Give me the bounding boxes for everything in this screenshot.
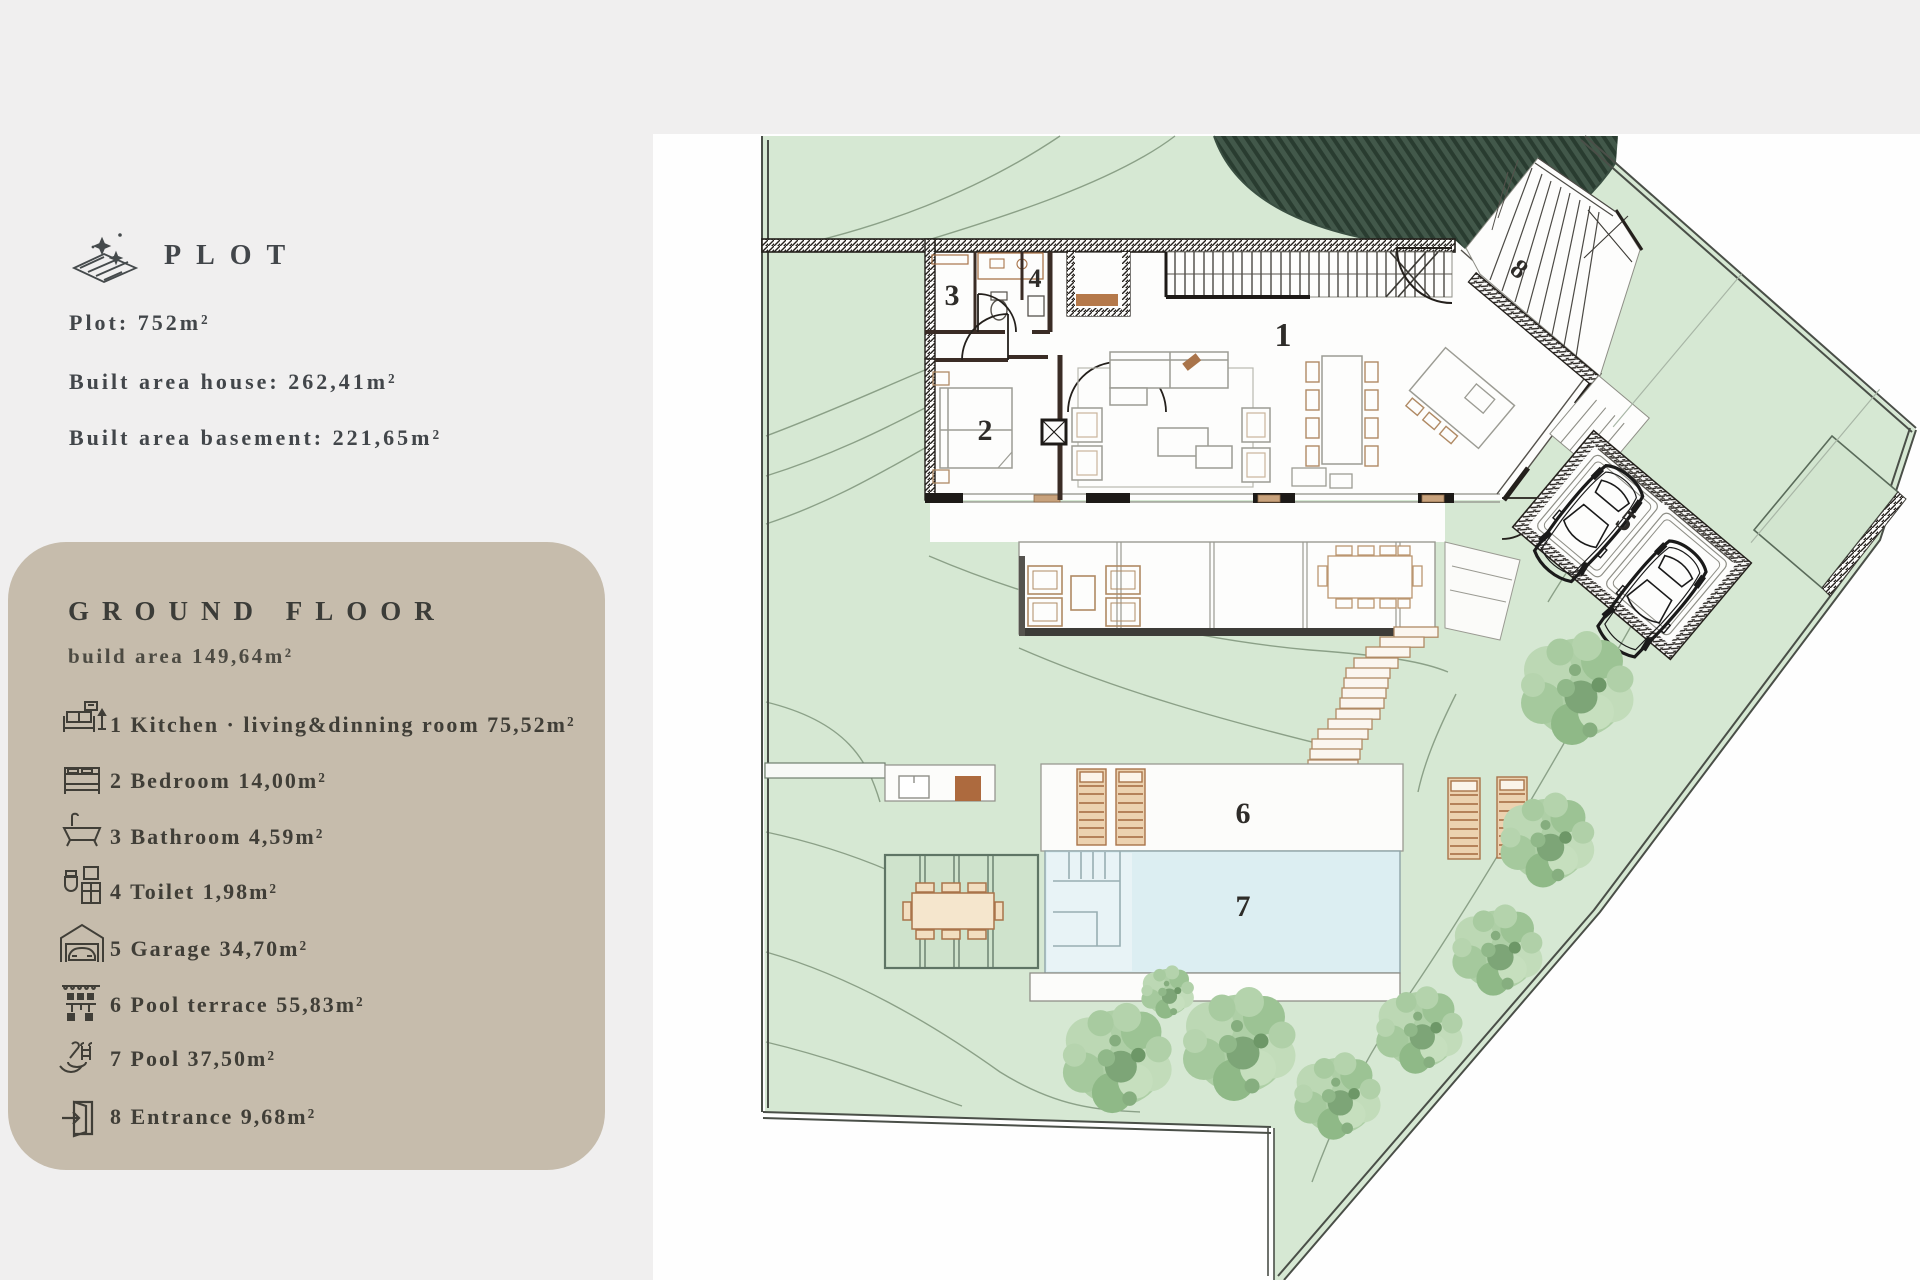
svg-text:1: 1	[1275, 317, 1292, 354]
svg-text:2: 2	[978, 414, 993, 447]
svg-text:4: 4	[1029, 264, 1042, 293]
svg-text:3: 3	[945, 279, 960, 312]
svg-text:6: 6	[1236, 797, 1251, 830]
svg-text:7: 7	[1236, 890, 1251, 923]
